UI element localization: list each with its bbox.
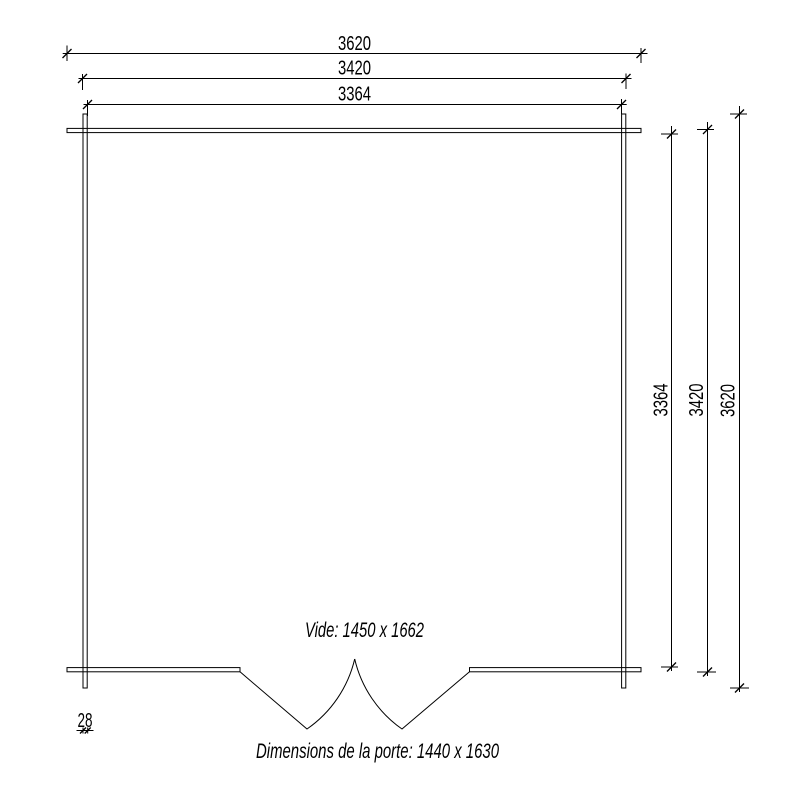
svg-text:28: 28 [78, 710, 93, 732]
svg-text:3364: 3364 [338, 83, 371, 105]
svg-text:Dimensions de la porte: 1440 x: Dimensions de la porte: 1440 x 1630 [256, 739, 499, 763]
svg-text:Vide: 1450 x 1662: Vide: 1450 x 1662 [305, 618, 424, 642]
svg-text:3620: 3620 [338, 33, 371, 55]
svg-text:3420: 3420 [686, 384, 708, 417]
svg-text:3620: 3620 [718, 384, 740, 417]
svg-text:3364: 3364 [651, 384, 673, 417]
svg-text:3420: 3420 [338, 57, 371, 79]
